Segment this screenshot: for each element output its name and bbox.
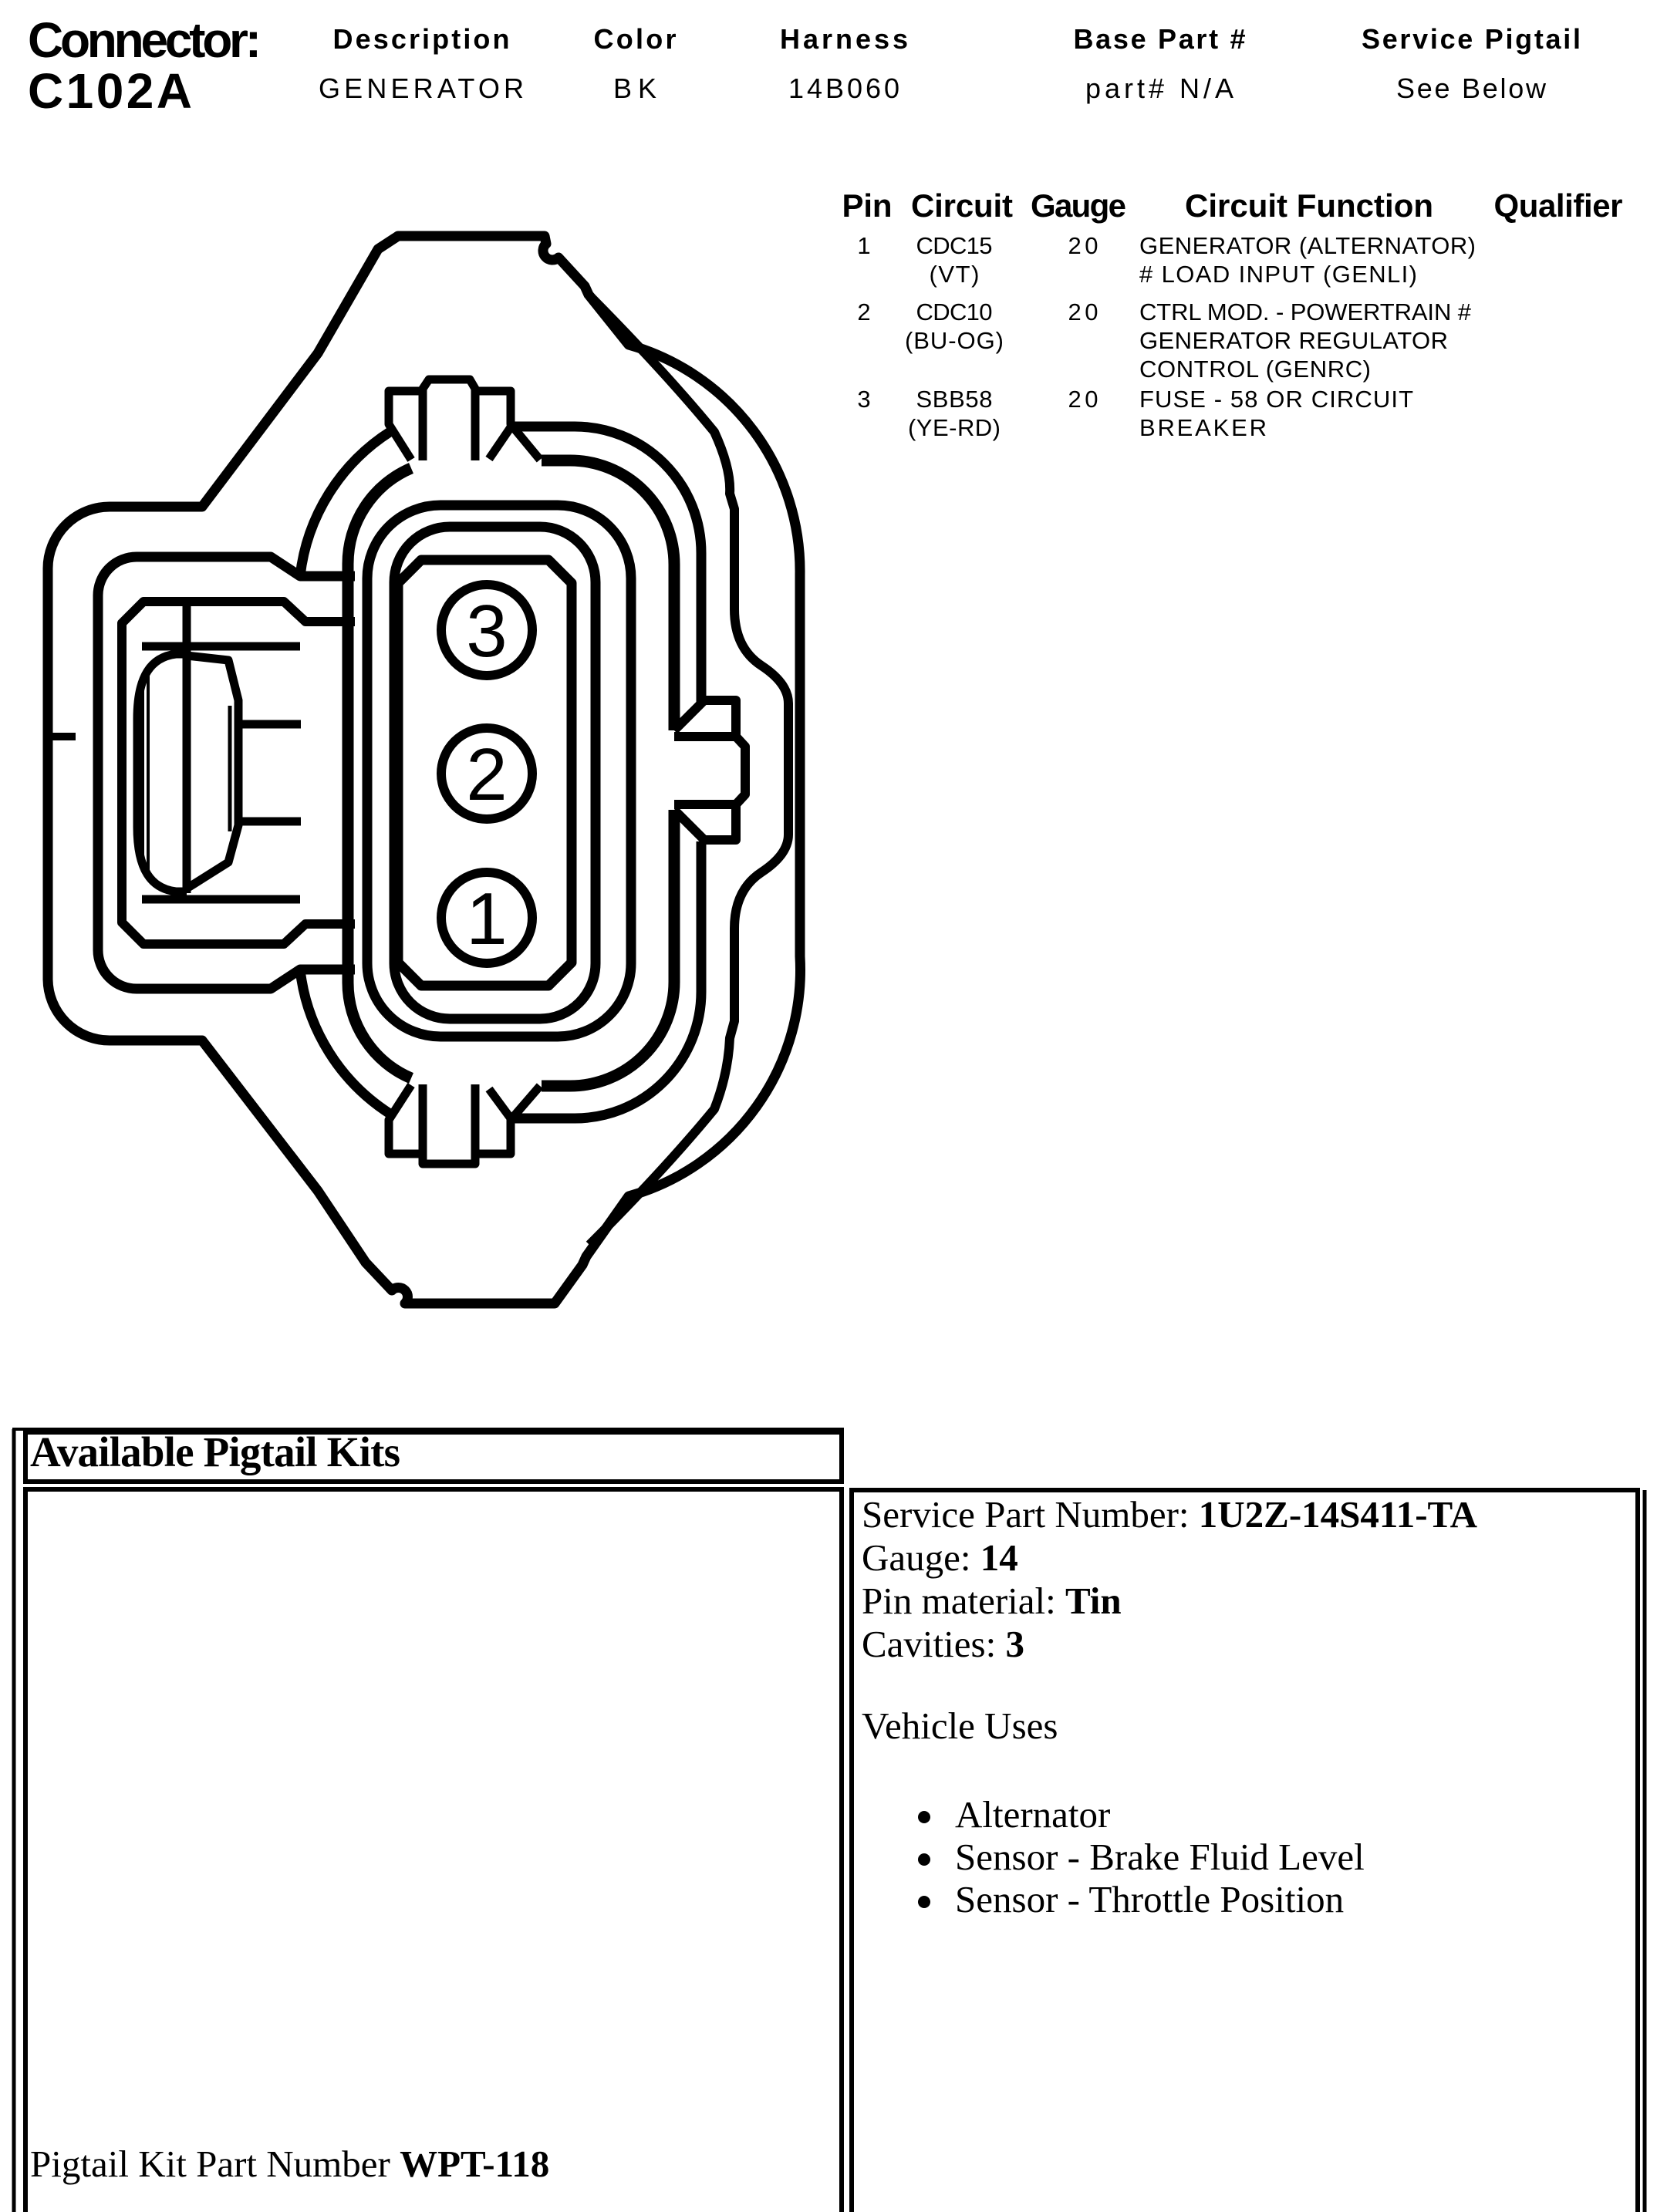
svg-text:1: 1 xyxy=(857,232,870,259)
svg-text:C102A: C102A xyxy=(28,63,192,119)
svg-text:Available Pigtail Kits: Available Pigtail Kits xyxy=(30,1428,400,1475)
svg-text:Alternator: Alternator xyxy=(955,1793,1110,1836)
svg-text:Service Pigtail: Service Pigtail xyxy=(1362,23,1581,55)
svg-text:2: 2 xyxy=(857,298,870,325)
svg-text:Sensor - Throttle Position: Sensor - Throttle Position xyxy=(955,1878,1344,1920)
svg-text:Vehicle Uses: Vehicle Uses xyxy=(862,1705,1058,1747)
svg-text:Gauge: Gauge xyxy=(1031,187,1126,224)
svg-text:2: 2 xyxy=(466,733,507,816)
svg-text:Harness: Harness xyxy=(780,23,908,55)
svg-text:# LOAD INPUT (GENLI): # LOAD INPUT (GENLI) xyxy=(1139,261,1417,288)
svg-text:Circuit Function: Circuit Function xyxy=(1185,187,1433,224)
svg-text:GENERATOR: GENERATOR xyxy=(319,72,524,104)
svg-text:Sensor - Brake Fluid Level: Sensor - Brake Fluid Level xyxy=(955,1836,1365,1878)
svg-text:Cavities: 3: Cavities: 3 xyxy=(862,1623,1024,1665)
svg-text:GENERATOR REGULATOR: GENERATOR REGULATOR xyxy=(1139,327,1448,354)
svg-text:Qualifier: Qualifier xyxy=(1494,187,1623,224)
svg-text:3: 3 xyxy=(466,590,507,673)
svg-text:(VT): (VT) xyxy=(930,261,980,288)
svg-text:Gauge: 14: Gauge: 14 xyxy=(862,1536,1018,1579)
svg-text:CONTROL (GENRC): CONTROL (GENRC) xyxy=(1139,356,1371,383)
svg-text:CDC10: CDC10 xyxy=(916,298,993,325)
svg-text:Circuit: Circuit xyxy=(911,187,1013,224)
svg-text:Pin material: Tin: Pin material: Tin xyxy=(862,1580,1122,1622)
svg-text:CDC15: CDC15 xyxy=(916,232,993,259)
svg-text:CTRL MOD. - POWERTRAIN #: CTRL MOD. - POWERTRAIN # xyxy=(1139,298,1472,325)
svg-text:Pin: Pin xyxy=(842,187,893,224)
svg-text:Base Part #: Base Part # xyxy=(1074,23,1246,55)
svg-text:(YE-RD): (YE-RD) xyxy=(908,414,1001,441)
svg-text:Pigtail Kit Part Number WPT-11: Pigtail Kit Part Number WPT-118 xyxy=(30,2143,549,2185)
svg-text:SBB58: SBB58 xyxy=(916,386,993,413)
svg-text:(BU-OG): (BU-OG) xyxy=(905,327,1004,354)
svg-text:Connector:: Connector: xyxy=(28,12,262,68)
svg-text:GENERATOR (ALTERNATOR): GENERATOR (ALTERNATOR) xyxy=(1139,232,1476,259)
svg-text:3: 3 xyxy=(857,386,870,413)
svg-text:Service Part Number: 1U2Z-14S4: Service Part Number: 1U2Z-14S411-TA xyxy=(862,1493,1478,1536)
svg-text:1: 1 xyxy=(466,878,507,960)
